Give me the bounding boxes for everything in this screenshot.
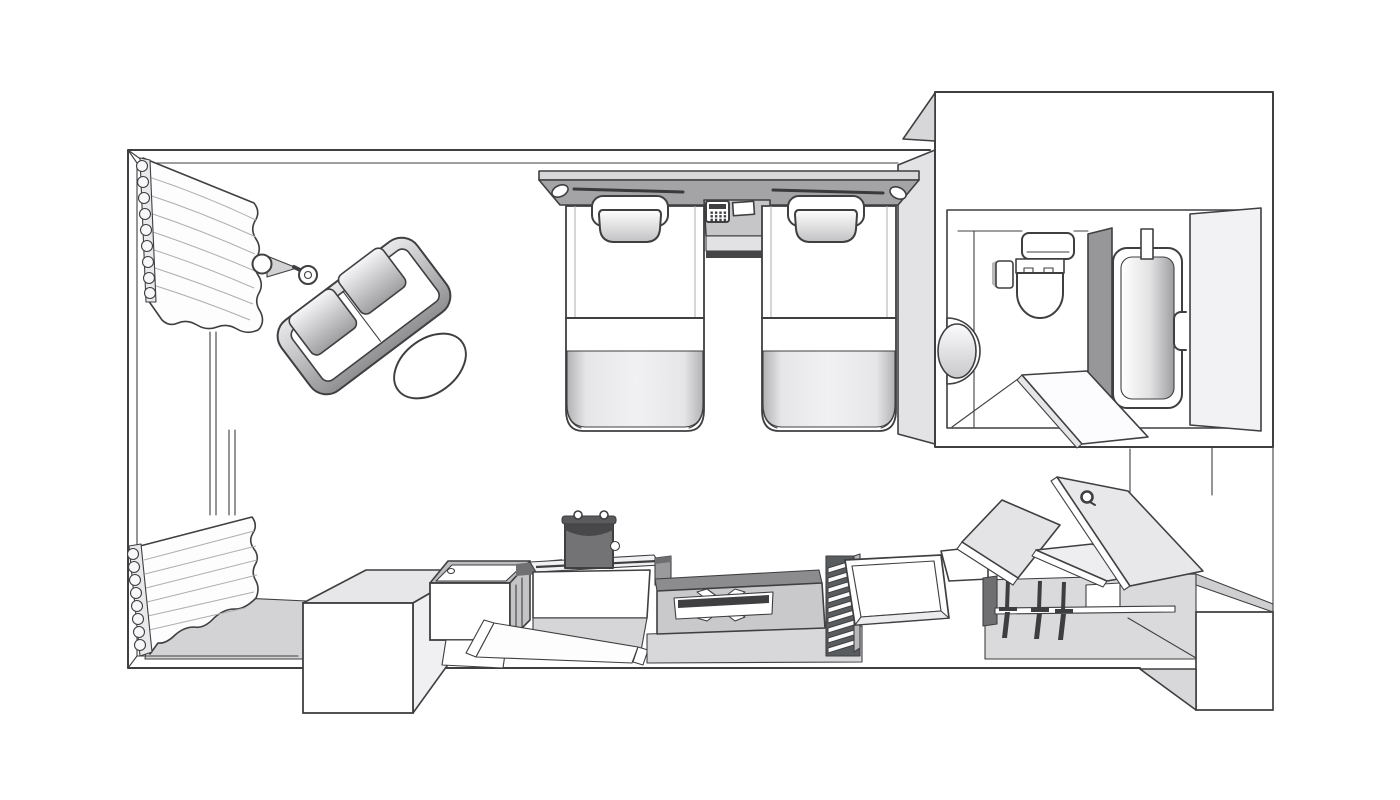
bathtub-icon	[1113, 229, 1182, 408]
bed-right	[762, 196, 896, 431]
luggage-rack-panel	[655, 570, 825, 634]
hanger-rod	[995, 606, 1175, 614]
notepad-icon	[733, 201, 755, 215]
kettle-icon	[562, 511, 620, 568]
floor-plan	[0, 0, 1400, 800]
floor-plan-drawing	[0, 0, 1400, 800]
bed-left	[566, 196, 704, 431]
telephone-icon	[706, 201, 729, 222]
